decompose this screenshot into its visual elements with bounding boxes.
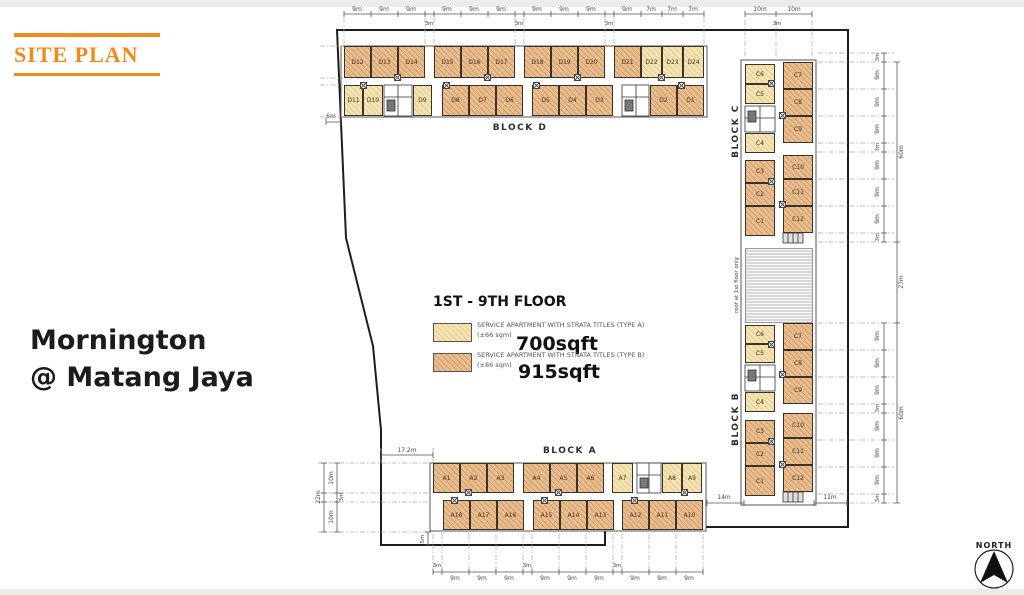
shaft-icon [768, 80, 775, 87]
unit-d10: D10 [363, 85, 383, 116]
unit-a13: A13 [587, 500, 614, 530]
stair-core-d-right [622, 85, 649, 116]
shaft-icon [678, 82, 685, 89]
dim-label: 9m [406, 6, 416, 13]
unit-d21: D21 [614, 46, 641, 78]
dim-label: 10m [328, 510, 335, 524]
dim-label: 14m [717, 494, 731, 501]
dim-label: 7m [646, 6, 656, 13]
shaft-icon [360, 82, 367, 89]
dim-label: 9m [540, 575, 550, 582]
stair-core-b [745, 365, 775, 391]
shaft-b-bottom [783, 492, 803, 502]
unit-d14: D14 [398, 46, 425, 78]
dim-label: 60m [898, 406, 905, 420]
dim-label: 9m [496, 6, 506, 13]
unit-a10: A10 [676, 500, 703, 530]
dim-label: 22m [315, 490, 322, 504]
dim-label: 9m [874, 358, 881, 368]
dim-label: 9m [567, 575, 577, 582]
unit-b-c12: C12 [783, 465, 813, 492]
dim-label: 9m [477, 575, 487, 582]
shaft-icon [768, 438, 775, 445]
shaft-icon [779, 461, 786, 468]
dim-label: 9m [874, 70, 881, 80]
dim-label: 3m [875, 494, 881, 503]
dim-label: 7m [688, 6, 698, 13]
unit-b-c4: C4 [745, 392, 775, 412]
dim-label: 9m [874, 124, 881, 134]
unit-a1: A1 [433, 463, 460, 493]
dim-label: 3m [875, 404, 881, 413]
dim-label: 3m [773, 21, 782, 27]
unit-c-c12: C12 [783, 206, 813, 233]
shaft-icon [533, 82, 540, 89]
unit-d7: D7 [469, 85, 496, 116]
unit-d5: D5 [532, 85, 559, 116]
dim-label: 3m [523, 563, 532, 569]
shaft-icon [484, 74, 491, 81]
stair-core-c [745, 106, 775, 132]
shaft-icon [768, 341, 775, 348]
unit-d8: D8 [442, 85, 469, 116]
shaft-icon [631, 497, 638, 504]
dim-labels-top-c: 10m 3m 10m [753, 6, 801, 27]
shaft-icon [555, 489, 562, 496]
dim-label: 5m [420, 535, 426, 544]
page-title: SITE PLAN [14, 42, 139, 68]
dim-label: 3m [605, 21, 614, 27]
shaft-icon [779, 112, 786, 119]
roof-hatch [745, 248, 813, 323]
legend-floor-range: 1ST - 9TH FLOOR [433, 294, 566, 310]
shaft-icon [779, 371, 786, 378]
unit-c-c8: C8 [783, 89, 813, 116]
legend-type-a-desc: SERVICE APARTMENT WITH STRATA TITLES (TY… [477, 321, 644, 329]
dim-label: 27m [898, 275, 905, 289]
stair-core-a [637, 463, 661, 493]
dim-label: 9m [684, 575, 694, 582]
block-b-label: BLOCK B [731, 374, 741, 464]
unit-a16: A16 [497, 500, 524, 530]
dim-label: 9m [874, 160, 881, 170]
unit-c-c10: C10 [783, 155, 813, 179]
unit-b-c7: C7 [783, 323, 813, 350]
unit-d18: D18 [524, 46, 551, 78]
unit-d12: D12 [344, 46, 371, 78]
unit-d2: D2 [650, 85, 677, 116]
shaft-icon [574, 74, 581, 81]
dim-label: 9m [874, 187, 881, 197]
unit-c-c5: C5 [745, 84, 775, 104]
dim-label: 9m [874, 421, 881, 431]
unit-c-c1: C1 [745, 206, 775, 236]
unit-c-c9: C9 [783, 116, 813, 143]
block-d-label: BLOCK D [470, 123, 570, 133]
dim-label: 3m [425, 21, 434, 27]
roof-note: roof at 1st floor only [734, 245, 740, 325]
shaft-icon [465, 489, 472, 496]
unit-a15: A15 [533, 500, 560, 530]
dim-label: 9m [657, 575, 667, 582]
unit-a3: A3 [487, 463, 514, 493]
shaft-icon [681, 489, 688, 496]
dim-label: 9m [504, 575, 514, 582]
unit-b-c9: C9 [783, 377, 813, 404]
dim-label: 10m [787, 6, 801, 13]
dim-label: 9m [469, 6, 479, 13]
dim-label: 9m [874, 97, 881, 107]
unit-b-c10: C10 [783, 413, 813, 438]
dim-label: 9m [874, 385, 881, 395]
north-compass: NORTH [975, 541, 1013, 588]
project-name: Mornington @ Matang Jaya [30, 322, 254, 396]
unit-a12: A12 [622, 500, 649, 530]
dim-label: 11m [823, 494, 837, 501]
unit-c-c4: C4 [745, 133, 775, 153]
dim-label: 3m [875, 53, 881, 62]
unit-d20: D20 [578, 46, 605, 78]
shaft-icon [658, 74, 665, 81]
dim-label: 3m [339, 493, 345, 502]
dim-label: 9m [586, 6, 596, 13]
unit-b-c11: C11 [783, 438, 813, 465]
unit-d4: D4 [559, 85, 586, 116]
block-c-label: BLOCK C [731, 86, 741, 176]
dim-labels-right-outer: 60m 27m 60m [898, 145, 905, 420]
project-name-line2: @ Matang Jaya [30, 359, 254, 396]
unit-d17: D17 [488, 46, 515, 78]
dim-label: 9m [594, 575, 604, 582]
shaft-icon [394, 74, 401, 81]
legend-swatch-type-b [433, 353, 472, 372]
dim-label: 3m [433, 563, 442, 569]
dim-labels-top-d: 9m 9m 9m 3m 9m 9m 9m 3m 9m 9m 9m 3m 9m 7… [352, 6, 698, 27]
unit-a8: A8 [662, 463, 682, 493]
dim-label: 9m [352, 6, 362, 13]
unit-a6: A6 [577, 463, 604, 493]
unit-d23: D23 [662, 46, 683, 78]
shaft-icon [768, 178, 775, 185]
dim-label: 9m [559, 6, 569, 13]
dim-label: 9m [630, 575, 640, 582]
title-rule-top [14, 33, 160, 37]
unit-d11: D11 [344, 85, 363, 116]
dim-label: 3m [875, 233, 881, 242]
dim-labels-right-c: 3m 9m 9m 9m 3m 9m 9m 9m 3m [874, 53, 881, 242]
unit-a4: A4 [523, 463, 550, 493]
unit-a17: A17 [470, 500, 497, 530]
dim-label: 9m [532, 6, 542, 13]
block-a-label: BLOCK A [520, 446, 620, 456]
unit-c-c11: C11 [783, 179, 813, 206]
title-rule-bottom [14, 73, 160, 76]
dim-label: 7m [667, 6, 677, 13]
unit-a14: A14 [560, 500, 587, 530]
dim-labels-bottom: 3m 9m 9m 9m 3m 9m 9m 9m 3m 9m 9m 9m [433, 563, 694, 582]
unit-c-c7: C7 [783, 62, 813, 89]
unit-d24: D24 [683, 46, 704, 78]
shaft-icon [443, 82, 450, 89]
stair-core-d-left [384, 85, 412, 116]
unit-d9: D9 [413, 85, 432, 116]
shaft-icon [779, 201, 786, 208]
dim-label: 9m [450, 575, 460, 582]
dim-label: 3m [515, 21, 524, 27]
shaft-c-bottom [783, 233, 803, 243]
dim-label: 9m [379, 6, 389, 13]
north-label: NORTH [976, 541, 1012, 550]
unit-d15: D15 [434, 46, 461, 78]
shaft-icon [541, 497, 548, 504]
unit-b-c2: C2 [745, 443, 775, 466]
dim-label: 10m [328, 471, 335, 485]
unit-c-c2: C2 [745, 183, 775, 206]
dim-labels-right-b: 9m 9m 9m 3m 9m 9m 9m 3m [874, 331, 881, 502]
dim-label: 9m [874, 331, 881, 341]
legend-type-b-sqm: (±86 sqm) [477, 361, 512, 369]
dim-label: 10m [753, 6, 767, 13]
unit-d6: D6 [496, 85, 523, 116]
unit-b-c8: C8 [783, 350, 813, 377]
unit-b-c1: C1 [745, 466, 775, 496]
dim-label: 9m [442, 6, 452, 13]
dim-label: 3m [875, 143, 881, 152]
project-name-line1: Mornington [30, 322, 254, 359]
unit-a7: A7 [612, 463, 633, 493]
dim-label: 9m [874, 214, 881, 224]
unit-d3: D3 [586, 85, 613, 116]
legend-type-b-sqft: 915sqft [518, 361, 600, 383]
dim-label: 60m [898, 145, 905, 159]
unit-a11: A11 [649, 500, 676, 530]
unit-d1: D1 [677, 85, 704, 116]
dim-label: 9m [874, 475, 881, 485]
unit-a18: A18 [443, 500, 470, 530]
dim-label: 9m [622, 6, 632, 13]
dim-label: 3m [613, 563, 622, 569]
legend-swatch-type-a [433, 323, 472, 342]
legend-type-b-desc: SERVICE APARTMENT WITH STRATA TITLES (TY… [477, 351, 644, 359]
dim-label: 6m [326, 113, 336, 120]
dim-label: 17.2m [397, 447, 416, 454]
shaft-icon [451, 497, 458, 504]
legend-type-a-sqm: (±66 sqm) [477, 331, 512, 339]
dim-label: 9m [874, 448, 881, 458]
